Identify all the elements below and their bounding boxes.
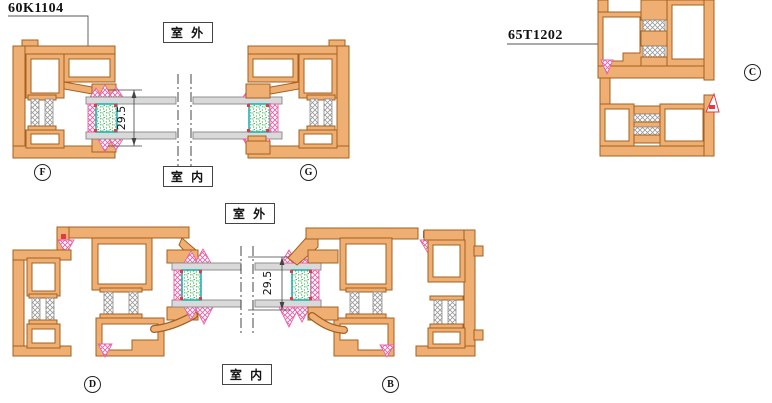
section-letter-b: B [382,376,399,393]
section-letter-f: F [34,164,51,181]
indoor-label-bottom: 室 内 [222,364,272,385]
glazing-unit-bottom-left [172,263,241,307]
cad-sheet: 60K1104 65T1202 室 外 室 内 室 外 室 内 29.5 29.… [0,0,772,403]
cad-drawing [0,0,772,403]
section-letter-g: G [300,164,317,181]
dimension-value-bottom: 29.5 [262,268,274,298]
glazing-unit-top-right [193,97,282,139]
profile-section-c [598,0,719,156]
indoor-label-top: 室 内 [163,166,213,187]
leader-line-60k1104 [8,16,88,47]
profile-section-d [13,227,198,357]
glazing-unit-top-left [86,97,176,139]
outdoor-label-top: 室 外 [163,22,213,43]
profile-code-65t1202: 65T1202 [508,28,563,44]
profile-code-60k1104: 60K1104 [8,1,64,17]
section-letter-c: C [744,64,761,81]
dimension-value-top: 29.5 [116,103,128,133]
section-letter-d: D [84,376,101,393]
outdoor-label-bottom: 室 外 [225,203,275,224]
